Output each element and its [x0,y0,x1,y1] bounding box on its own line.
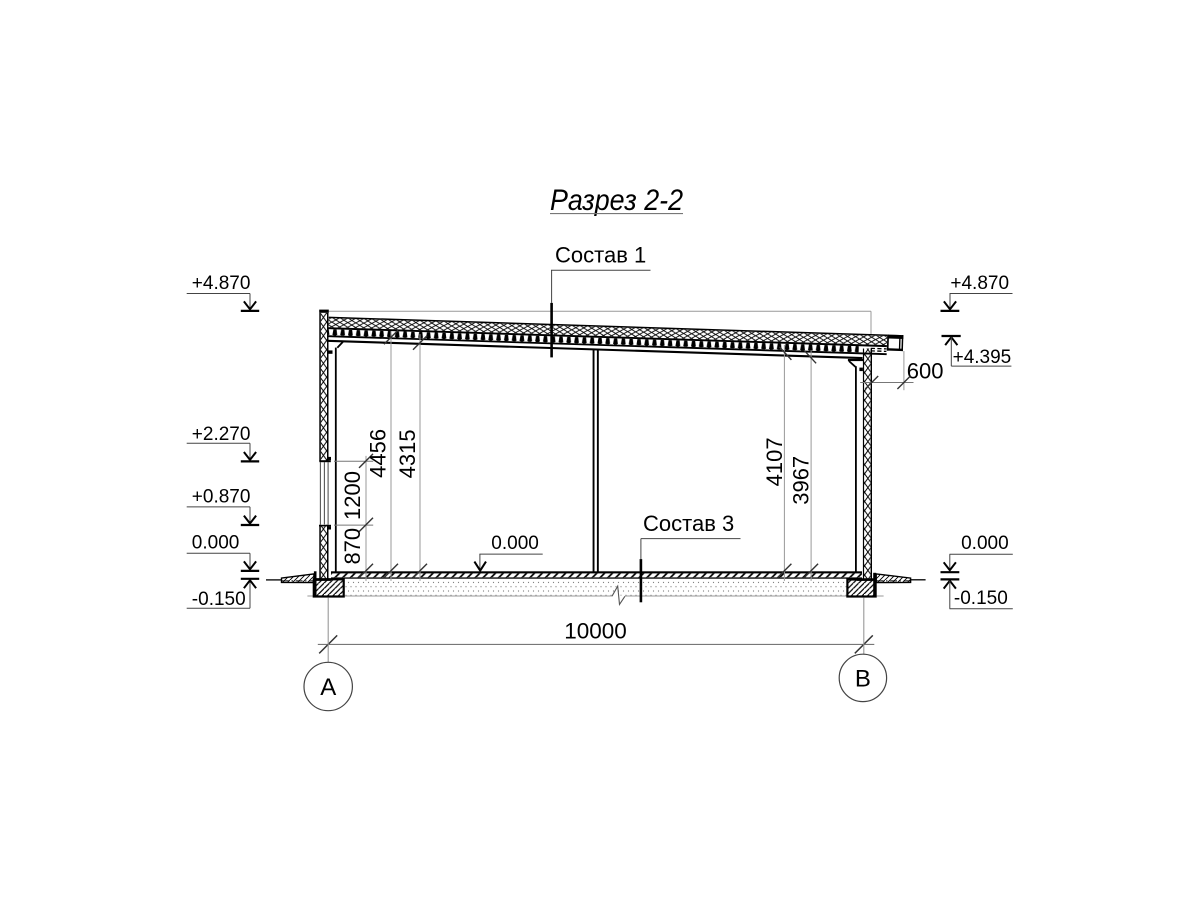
svg-text:Состав 1: Состав 1 [555,243,646,268]
svg-text:-0.150: -0.150 [192,589,246,610]
svg-text:10000: 10000 [564,618,627,643]
svg-text:+4.870: +4.870 [950,273,1009,294]
svg-text:Разрез 2-2: Разрез 2-2 [550,184,683,217]
svg-text:-0.150: -0.150 [954,588,1008,609]
svg-text:Состав 3: Состав 3 [643,511,734,536]
svg-text:870: 870 [340,528,365,565]
svg-text:0.000: 0.000 [192,532,240,553]
svg-text:В: В [855,665,871,692]
svg-text:А: А [320,674,336,701]
svg-text:+4.870: +4.870 [192,273,251,294]
svg-text:0.000: 0.000 [491,533,539,554]
svg-text:0.000: 0.000 [961,533,1009,554]
svg-text:3967: 3967 [789,456,814,505]
svg-text:+0.870: +0.870 [192,487,251,508]
svg-text:4456: 4456 [366,429,391,478]
svg-text:+4.395: +4.395 [953,347,1012,368]
svg-text:4315: 4315 [395,429,420,478]
svg-text:4107: 4107 [762,437,787,486]
svg-text:+2.270: +2.270 [192,424,251,445]
svg-text:1200: 1200 [340,471,365,520]
svg-text:600: 600 [907,359,944,384]
